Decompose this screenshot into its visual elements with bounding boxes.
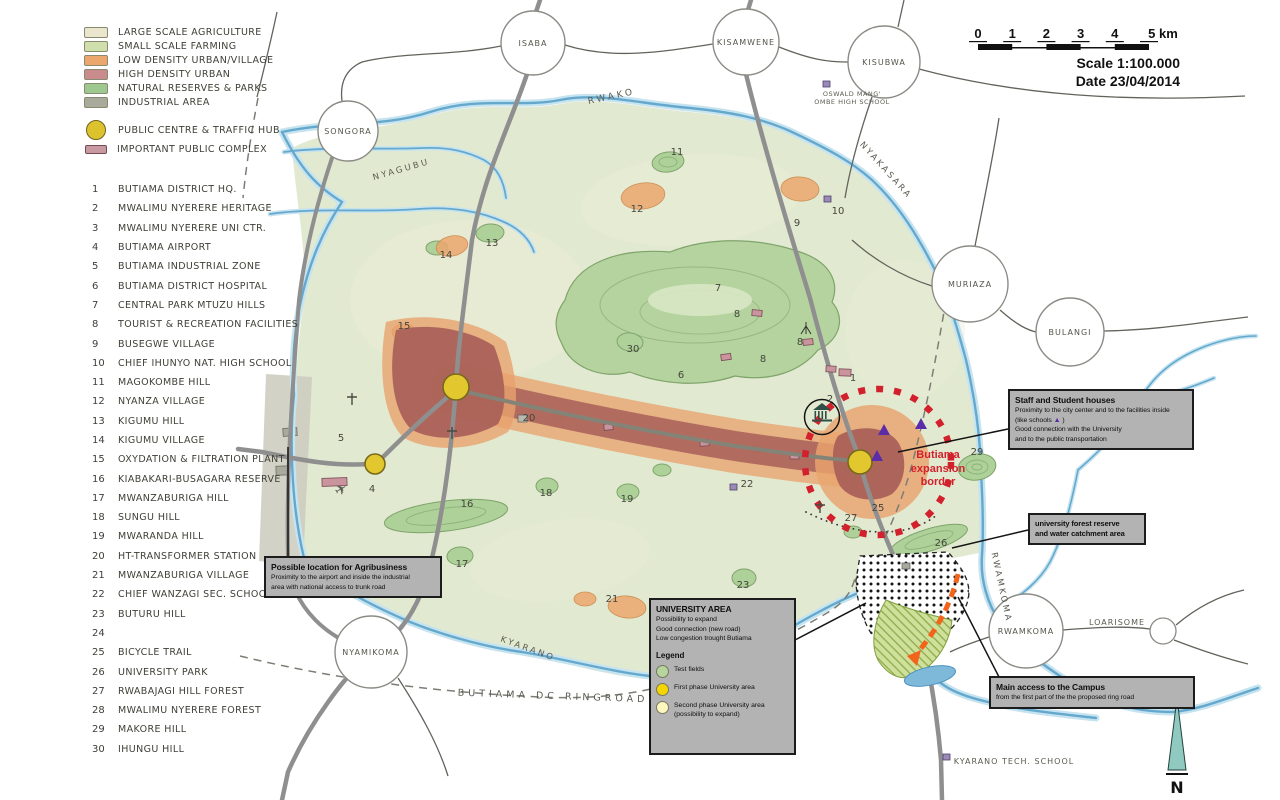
university-legend-item: First phase University area xyxy=(656,683,789,696)
location-number: 5 xyxy=(92,261,118,272)
list-item: 3MWALIMU NYERERE UNI CTR. xyxy=(92,219,298,238)
location-number: 2 xyxy=(92,203,118,214)
map-number: 22 xyxy=(741,479,754,490)
map-number: 8 xyxy=(760,354,766,365)
map-number: 25 xyxy=(872,503,885,514)
place-circle-bulangi: BULANGI xyxy=(1036,298,1104,366)
location-label: MWALIMU NYERERE HERITAGE xyxy=(118,203,272,214)
location-label: BUTIAMA INDUSTRIAL ZONE xyxy=(118,261,261,272)
list-item: 11MAGOKOMBE HILL xyxy=(92,373,298,392)
legend-list: LARGE SCALE AGRICULTURESMALL SCALE FARMI… xyxy=(84,25,280,156)
callout-line: (like schools ▲ ) xyxy=(1015,416,1187,426)
legend-item: HIGH DENSITY URBAN xyxy=(84,67,280,81)
list-item: 8TOURIST & RECREATION FACILITIES xyxy=(92,315,298,334)
location-label: SUNGU HILL xyxy=(118,512,180,523)
callout-agribusiness: Possible location for Agribusiness Proxi… xyxy=(264,556,442,598)
scale-meta: Scale 1:100.000 Date 23/04/2014 xyxy=(1076,54,1180,90)
place-label: NYAMIKOMA xyxy=(342,648,399,657)
location-number: 18 xyxy=(92,512,118,523)
location-label: MWARANDA HILL xyxy=(118,531,204,542)
callout-university-area: UNIVERSITY AREA Possibility to expand Go… xyxy=(649,598,796,755)
legend-dot-label: Second phase University area(possibility… xyxy=(674,701,765,719)
list-item: 13KIGUMU HILL xyxy=(92,412,298,431)
location-number: 11 xyxy=(92,377,118,388)
location-label: IHUNGU HILL xyxy=(118,744,184,755)
callout-title: Staff and Student houses xyxy=(1015,395,1187,406)
map-number: 15 xyxy=(398,321,411,332)
date-text: Date 23/04/2014 xyxy=(1076,72,1180,90)
list-item: 4BUTIAMA AIRPORT xyxy=(92,238,298,257)
list-item: 10CHIEF IHUNYO NAT. HIGH SCHOOL xyxy=(92,354,298,373)
callout-line: Possibility to expand xyxy=(656,615,789,625)
location-label: CENTRAL PARK MTUZU HILLS xyxy=(118,300,265,311)
callout-title: university forest reserve xyxy=(1035,519,1139,529)
location-label: BICYCLE TRAIL xyxy=(118,647,192,658)
location-number: 4 xyxy=(92,242,118,253)
location-label: MWALIMU NYERERE UNI CTR. xyxy=(118,223,266,234)
list-item: 28MWALIMU NYERERE FOREST xyxy=(92,701,298,720)
map-number: 21 xyxy=(606,594,619,605)
scalebar-end-label: 5 km xyxy=(1148,26,1178,41)
legend-label: HIGH DENSITY URBAN xyxy=(118,69,230,80)
map-number: 23 xyxy=(737,580,750,591)
expansion-line: expansion xyxy=(901,463,975,477)
place-circle-kisubwa: KISUBWA xyxy=(848,26,920,98)
legend-dot xyxy=(656,683,669,696)
callout-line: area with national access to trunk road xyxy=(271,583,435,593)
legend-dot-label: First phase University area xyxy=(674,683,755,692)
legend-label: PUBLIC CENTRE & TRAFFIC HUB xyxy=(118,125,280,136)
map-number: 26 xyxy=(935,538,948,549)
list-item: 23BUTURU HILL xyxy=(92,605,298,624)
callout-title: and water catchment area xyxy=(1035,529,1139,539)
map-number: 20 xyxy=(523,413,536,424)
map-number: 6 xyxy=(678,370,684,381)
list-item: 17MWANZABURIGA HILL xyxy=(92,489,298,508)
list-item: 26UNIVERSITY PARK xyxy=(92,662,298,681)
location-number: 19 xyxy=(92,531,118,542)
location-label: BUSEGWE VILLAGE xyxy=(118,339,215,350)
place-label: KISAMWENE xyxy=(717,38,775,47)
legend-swatch xyxy=(84,27,108,38)
location-label: HT-TRANSFORMER STATION xyxy=(118,551,257,562)
legend-item: LOW DENSITY URBAN/VILLAGE xyxy=(84,53,280,67)
scalebar-tick: 4 xyxy=(1111,26,1119,41)
callout-staff-houses: Staff and Student houses Proximity to th… xyxy=(1008,389,1194,450)
place-label: KISUBWA xyxy=(862,58,906,67)
location-number: 14 xyxy=(92,435,118,446)
callout-main-access: Main access to the Campus from the first… xyxy=(989,676,1195,709)
university-legend-item: Test fields xyxy=(656,665,789,678)
callout-line: and to the public transportation xyxy=(1015,435,1187,445)
map-label: LOARISOME xyxy=(1089,618,1145,627)
university-legend-title: Legend xyxy=(656,651,789,660)
map-label: BUTIAMA DC RINGROAD xyxy=(458,688,649,706)
legend-label: SMALL SCALE FARMING xyxy=(118,41,237,52)
place-circle-isaba: ISABA xyxy=(501,11,565,75)
location-number: 24 xyxy=(92,628,118,639)
location-label: TOURIST & RECREATION FACILITIES xyxy=(118,319,298,330)
map-stage: ✈ ISABAKISAMWENEKISUBWASONGORAMURIAZABUL… xyxy=(0,0,1280,800)
location-label: BUTIAMA DISTRICT HOSPITAL xyxy=(118,281,267,292)
place-label: ISABA xyxy=(518,39,547,48)
map-number: 16 xyxy=(461,499,474,510)
location-number: 28 xyxy=(92,705,118,716)
location-number: 20 xyxy=(92,551,118,562)
location-list: 1BUTIAMA DISTRICT HQ.2MWALIMU NYERERE HE… xyxy=(92,180,298,759)
list-item: 2MWALIMU NYERERE HERITAGE xyxy=(92,199,298,218)
map-number: 5 xyxy=(338,433,344,444)
place-circle-songora: SONGORA xyxy=(318,101,378,161)
location-number: 25 xyxy=(92,647,118,658)
location-label: UNIVERSITY PARK xyxy=(118,667,208,678)
scalebar-tick: 3 xyxy=(1077,26,1084,41)
university-legend-item: Second phase University area(possibility… xyxy=(656,701,789,719)
map-number: 2 xyxy=(827,394,833,405)
location-number: 30 xyxy=(92,744,118,755)
location-label: NYANZA VILLAGE xyxy=(118,396,205,407)
location-label: RWABAJAGI HILL FOREST xyxy=(118,686,244,697)
location-label: MWALIMU NYERERE FOREST xyxy=(118,705,261,716)
location-label: KIGUMU HILL xyxy=(118,416,184,427)
map-number: 14 xyxy=(440,250,453,261)
map-number: 17 xyxy=(456,559,469,570)
list-item: 12NYANZA VILLAGE xyxy=(92,392,298,411)
callout-line: Proximity to the city center and to the … xyxy=(1015,406,1187,416)
location-number: 27 xyxy=(92,686,118,697)
list-item: 9BUSEGWE VILLAGE xyxy=(92,334,298,353)
scale-bar: 012345 km xyxy=(969,26,1178,50)
list-item: 5BUTIAMA INDUSTRIAL ZONE xyxy=(92,257,298,276)
location-number: 12 xyxy=(92,396,118,407)
compass-n-label: N xyxy=(1170,778,1183,797)
location-label: BUTIAMA AIRPORT xyxy=(118,242,211,253)
list-item: 15OXYDATION & FILTRATION PLANT xyxy=(92,450,298,469)
location-number: 22 xyxy=(92,589,118,600)
location-label: KIGUMU VILLAGE xyxy=(118,435,205,446)
university-area xyxy=(856,552,969,690)
location-label: CHIEF WANZAGI SEC. SCHOOL xyxy=(118,589,272,600)
list-item: 27RWABAJAGI HILL FOREST xyxy=(92,682,298,701)
location-number: 21 xyxy=(92,570,118,581)
scalebar-tick: 2 xyxy=(1043,26,1050,41)
map-number: 18 xyxy=(540,488,553,499)
map-number: 7 xyxy=(715,283,721,294)
map-number: 8 xyxy=(734,309,740,320)
legend-item: NATURAL RESERVES & PARKS xyxy=(84,81,280,95)
place-circle-muriaza: MURIAZA xyxy=(932,246,1008,322)
list-item: 29MAKORE HILL xyxy=(92,720,298,739)
location-label: BUTURU HILL xyxy=(118,609,186,620)
location-number: 23 xyxy=(92,609,118,620)
legend-item: INDUSTRIAL AREA xyxy=(84,95,280,109)
place-label: SONGORA xyxy=(324,127,372,136)
map-number: 12 xyxy=(631,204,644,215)
callout-line: Good connection (new road) xyxy=(656,625,789,635)
list-item: 24 xyxy=(92,624,298,643)
location-number: 1 xyxy=(92,184,118,195)
legend-swatch xyxy=(84,41,108,52)
map-number: 10 xyxy=(832,206,845,217)
location-number: 16 xyxy=(92,474,118,485)
place-circle-nyamikoma: NYAMIKOMA xyxy=(335,616,407,688)
callout-title: Possible location for Agribusiness xyxy=(271,562,435,573)
list-item: 7CENTRAL PARK MTUZU HILLS xyxy=(92,296,298,315)
callout-line: Proximity to the airport and inside the … xyxy=(271,573,435,583)
map-number: 1 xyxy=(850,373,856,384)
callout-line: from the first part of the the proposed … xyxy=(996,693,1188,703)
legend-swatch xyxy=(86,120,106,140)
location-label: MWANZABURIGA VILLAGE xyxy=(118,570,249,581)
callout-forest-reserve: university forest reserve and water catc… xyxy=(1028,513,1146,545)
expansion-border-label: Butiama expansion border xyxy=(901,449,975,490)
map-label: OMBE HIGH SCHOOL xyxy=(814,98,890,106)
callout-title: Main access to the Campus xyxy=(996,682,1188,693)
callout-title: UNIVERSITY AREA xyxy=(656,604,789,615)
map-number: 4 xyxy=(369,484,375,495)
legend-item: SMALL SCALE FARMING xyxy=(84,39,280,53)
location-label: MAGOKOMBE HILL xyxy=(118,377,210,388)
location-number: 26 xyxy=(92,667,118,678)
location-label: BUTIAMA DISTRICT HQ. xyxy=(118,184,237,195)
place-label: MURIAZA xyxy=(948,280,992,289)
callout-line: Good connection with the University xyxy=(1015,425,1187,435)
legend-swatch xyxy=(84,69,108,80)
list-item: 30IHUNGU HILL xyxy=(92,740,298,759)
location-number: 3 xyxy=(92,223,118,234)
location-number: 15 xyxy=(92,454,118,465)
small-place-circle xyxy=(1150,618,1176,644)
location-number: 9 xyxy=(92,339,118,350)
legend-label: LOW DENSITY URBAN/VILLAGE xyxy=(118,55,273,66)
map-label: OSWALD MANG' xyxy=(823,90,881,98)
legend-item: LARGE SCALE AGRICULTURE xyxy=(84,25,280,39)
legend-item: IMPORTANT PUBLIC COMPLEX xyxy=(84,142,280,156)
university-legend: Test fieldsFirst phase University areaSe… xyxy=(656,665,789,719)
legend-swatch xyxy=(84,97,108,108)
location-number: 6 xyxy=(92,281,118,292)
legend-swatch xyxy=(84,83,108,94)
list-item: 19MWARANDA HILL xyxy=(92,527,298,546)
list-item: 14KIGUMU VILLAGE xyxy=(92,431,298,450)
map-number: 13 xyxy=(486,238,499,249)
location-label: MWANZABURIGA HILL xyxy=(118,493,229,504)
list-item: 25BICYCLE TRAIL xyxy=(92,643,298,662)
map-number: 30 xyxy=(627,344,640,355)
list-item: 1BUTIAMA DISTRICT HQ. xyxy=(92,180,298,199)
map-label: KYARANO TECH. SCHOOL xyxy=(954,757,1074,766)
location-label: CHIEF IHUNYO NAT. HIGH SCHOOL xyxy=(118,358,292,369)
legend-item: PUBLIC CENTRE & TRAFFIC HUB xyxy=(84,118,280,142)
expansion-line: Butiama xyxy=(901,449,975,463)
legend-dot xyxy=(656,665,669,678)
location-number: 13 xyxy=(92,416,118,427)
place-circle-kisamwene: KISAMWENE xyxy=(713,9,779,75)
legend-swatch xyxy=(85,145,107,154)
scalebar-tick: 0 xyxy=(974,26,981,41)
list-item: 18SUNGU HILL xyxy=(92,508,298,527)
location-number: 10 xyxy=(92,358,118,369)
scalebar-tick: 1 xyxy=(1009,26,1016,41)
scale-text: Scale 1:100.000 xyxy=(1076,54,1180,72)
expansion-line: border xyxy=(901,476,975,490)
list-item: 16KIABAKARI-BUSAGARA RESERVE xyxy=(92,469,298,488)
list-item: 6BUTIAMA DISTRICT HOSPITAL xyxy=(92,276,298,295)
legend-label: NATURAL RESERVES & PARKS xyxy=(118,83,267,94)
map-number: 9 xyxy=(794,218,800,229)
map-number: 8 xyxy=(797,337,803,348)
location-number: 7 xyxy=(92,300,118,311)
legend-dot-label: Test fields xyxy=(674,665,704,674)
map-number: 27 xyxy=(845,513,858,524)
legend-label: IMPORTANT PUBLIC COMPLEX xyxy=(117,144,267,155)
location-label: OXYDATION & FILTRATION PLANT xyxy=(118,454,285,465)
legend-label: LARGE SCALE AGRICULTURE xyxy=(118,27,262,38)
legend-swatch xyxy=(84,55,108,66)
legend-dot xyxy=(656,701,669,714)
callout-line: Low congestion trought Butiama xyxy=(656,634,789,644)
place-label: RWAMKOMA xyxy=(998,627,1055,636)
place-label: BULANGI xyxy=(1049,328,1092,337)
location-number: 8 xyxy=(92,319,118,330)
location-number: 29 xyxy=(92,724,118,735)
location-label: KIABAKARI-BUSAGARA RESERVE xyxy=(118,474,281,485)
location-number: 17 xyxy=(92,493,118,504)
map-number: 19 xyxy=(621,494,634,505)
map-number: 11 xyxy=(671,147,684,158)
legend-label: INDUSTRIAL AREA xyxy=(118,97,210,108)
location-label: MAKORE HILL xyxy=(118,724,186,735)
